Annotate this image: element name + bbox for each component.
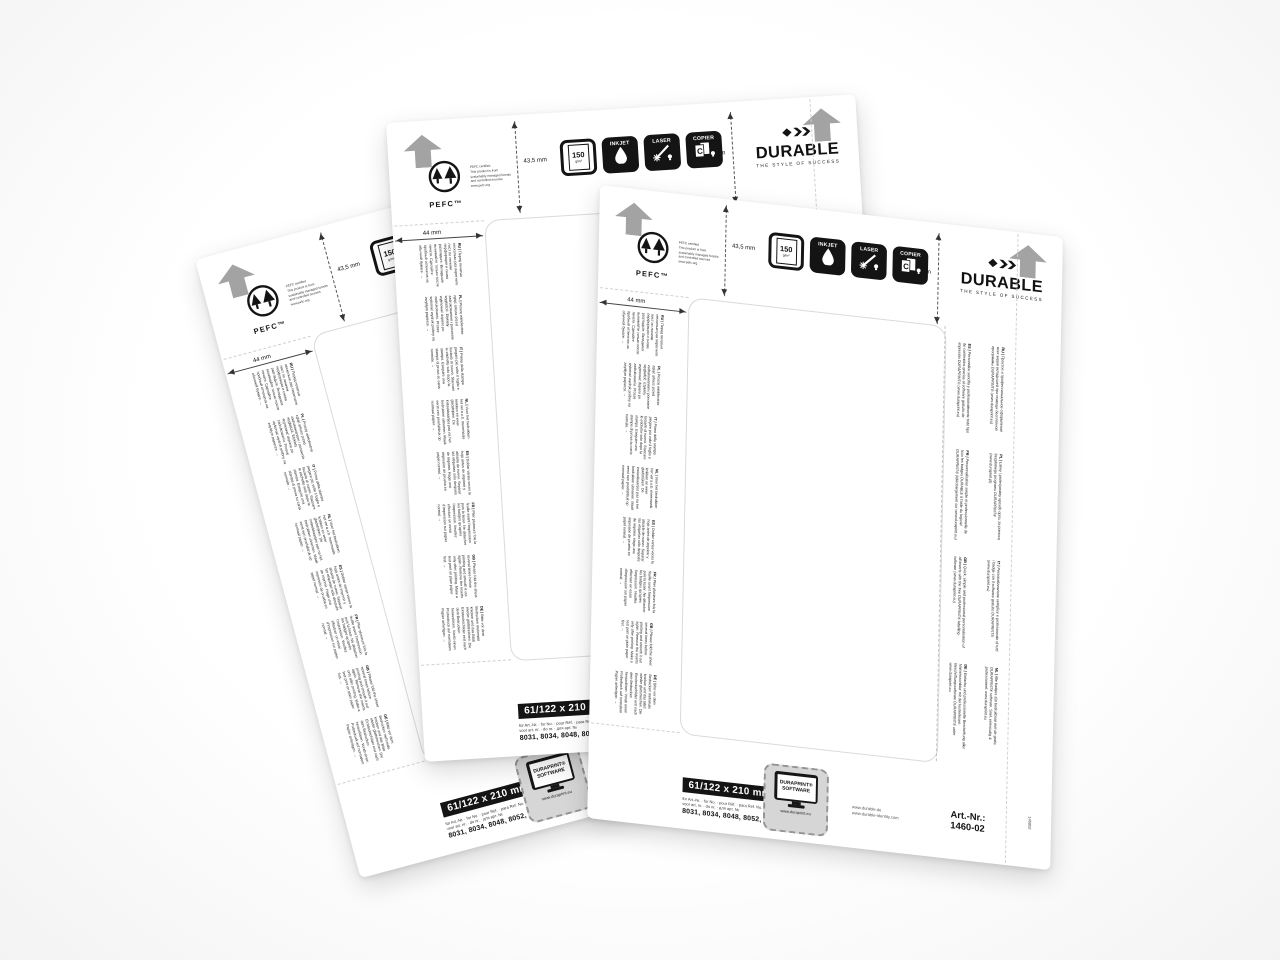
printer-pictograms: 150 g/m² INKJET LASER (768, 232, 928, 286)
instruction-pair: ES | Personalice sencilla y profesionalm… (946, 335, 1013, 445)
language-code: PL | (999, 454, 1003, 461)
instruction-text: Doblar varias veces la hoja antes de imp… (436, 451, 472, 495)
instruction-text: Voor het bedrukken het vel a.u.b. meerma… (431, 399, 471, 445)
paper-weight-unit: g/m² (575, 159, 582, 163)
instruction-paragraph: GB | Please fold the sheet several times… (416, 551, 503, 606)
instruction-paragraph: GB | Quick, simple and professional pers… (942, 549, 976, 655)
instruction-paragraph: PL | Proszę wielokrotnie zgiąć arkusz pr… (599, 358, 683, 417)
instruction-pair: FR | Personnalisation simple et professi… (944, 442, 1011, 552)
language-code: FR | (471, 502, 475, 509)
instruction-paragraph: NL | Voor het bedrukken het vel a.u.b. m… (597, 460, 681, 519)
language-code: ES | (465, 451, 469, 458)
durable-chevrons-icon (986, 257, 1018, 270)
instruction-paragraph: ES | Personalice sencilla y profesionalm… (946, 335, 980, 441)
pefc-caption: PEFC certified This product is from sust… (678, 234, 719, 287)
paper-weight-icon: 150 g/m² (559, 138, 597, 176)
instruction-text: Prima della stampa piegare più volte il … (283, 465, 325, 510)
language-code: IT | (653, 417, 657, 423)
instruction-text: Prima della stampa piegare più volte il … (625, 414, 658, 460)
language-code: DE | (479, 606, 483, 613)
instruction-paragraph: RU | Простое и профессиональное оформлен… (980, 339, 1014, 445)
pefc-trees-icon (423, 158, 465, 196)
insert-sheet-front: PEFC™ PEFC certified This product is fro… (587, 185, 1063, 870)
instruction-paragraph: NL | Voor het bedrukken het vel a.u.b. m… (407, 395, 494, 450)
instruction-text: Voor het bedrukken het vel a.u.b. meerma… (294, 515, 341, 564)
paper-sheet-icon: 150 g/m² (567, 144, 590, 171)
language-code: FR | (653, 572, 657, 579)
instruction-text: Personalice sencilla y profesionalmente … (956, 342, 971, 433)
language-code: PL | (657, 366, 661, 373)
monitor-icon: DURAPRINT® SOFTWARE (774, 771, 818, 805)
ink-droplet-icon (820, 247, 835, 265)
language-code: ES | (967, 343, 971, 351)
monitor-screen: DURAPRINT® SOFTWARE (528, 754, 572, 787)
language-code: DE | (963, 664, 967, 672)
instruction-text: Перед печатью несколько раз перегните ли… (251, 364, 301, 411)
instruction-paragraph: IT | Prima della stampa piegare più volt… (404, 343, 491, 398)
edge-print-code: 146002 (1027, 816, 1032, 830)
inkjet-icon: INKJET (601, 136, 639, 174)
language-code: PL | (458, 295, 462, 302)
dimension-label: 44 mm (421, 230, 444, 237)
instruction-text: Plier plusieurs fois la feuille avant l'… (321, 615, 368, 659)
svg-text:C: C (903, 261, 909, 271)
language-code: IT | (459, 347, 463, 353)
instruction-text: Plier plusieurs fois la feuille avant l'… (437, 503, 477, 546)
language-code: NL | (464, 398, 468, 405)
perforation-dash-line (394, 220, 484, 226)
instruction-text: Doblar varias veces la hoja antes de imp… (310, 566, 353, 612)
copier-pages-icon: C (899, 256, 921, 275)
instruction-paragraph: IT | Prima della stampa piegare più volt… (598, 409, 682, 468)
language-code: IT | (996, 561, 1000, 567)
monitor-screen: DURAPRINT® SOFTWARE (777, 773, 816, 801)
duraprint-url: www.duraprint.eu (765, 806, 826, 818)
instruction-text: Bitte vor dem Bedrucken mehrmals knicken… (614, 670, 656, 715)
instruction-paragraph: GB | Please fold the sheet several times… (594, 615, 678, 674)
pefc-logo: PEFC™ (238, 279, 291, 337)
margin-dimension-arrow: 43,5 mm (730, 112, 737, 204)
instruction-text: Простое и профессиональное оформление вс… (990, 346, 1005, 432)
instruction-paragraph: DE | Einfache und professionelle Beschri… (940, 656, 974, 762)
pefc-logo: PEFC™ (632, 228, 674, 281)
duraprint-software-badge: DURAPRINT® SOFTWARE www.duraprint.eu (763, 763, 829, 838)
printer-pictograms: 150 g/m² INKJET LASER (559, 131, 723, 177)
instruction-paragraph: ES | Doblar varias veces la hoja antes d… (410, 447, 497, 502)
copier-icon: COPIER C (685, 131, 723, 169)
instruction-text: Proszę wielokrotnie zgiąć arkusz przed z… (424, 295, 464, 341)
instruction-text: Bitte vor dem Bedrucken mehrmals knicken… (441, 606, 485, 650)
laser-icon: LASER (643, 133, 681, 171)
folding-instructions-column: RU | Перед печатью несколько раз перегни… (593, 306, 684, 725)
margin-dimension-arrow: 43,5 mm (937, 233, 940, 324)
paper-sheet-icon: 150 g/m² (776, 238, 797, 266)
instruction-text: Quick, simple and professional personali… (952, 556, 966, 648)
instruction-text: Please fold the sheet several times befo… (621, 620, 653, 666)
instruction-text: Bitte vor dem Bedrucken mehrmals knicken… (346, 715, 395, 765)
durable-logo: DURABLE THE STYLE OF SUCCESS (739, 121, 855, 170)
copier-pages-icon: C (693, 141, 716, 159)
instruction-paragraph: DE | Bitte vor dem Bedrucken mehrmals kn… (593, 666, 677, 725)
software-instructions-column: ES | Personalice sencilla y profesionalm… (940, 335, 1014, 766)
pefc-caption-line: www.pefc.org (471, 182, 512, 189)
language-code: FR | (965, 450, 969, 458)
language-code: DE | (653, 675, 657, 683)
instruction-text: Prima della stampa piegare più volte il … (430, 347, 465, 391)
paper-weight-icon: 150 g/m² (768, 232, 804, 272)
pefc-caption: PEFC certified This product is from sust… (469, 156, 512, 207)
language-code: NL | (994, 668, 998, 675)
language-code: NL | (655, 469, 659, 476)
instruction-pair: GB | Quick, simple and professional pers… (942, 549, 1009, 659)
instruction-paragraph: PL | Proszę wielokrotnie zgiąć arkusz pr… (401, 291, 488, 346)
instruction-text: Proszę wielokrotnie zgiąć arkusz przed z… (267, 414, 314, 464)
pefc-trees-icon (633, 228, 673, 268)
laser-icon: LASER (851, 241, 887, 281)
instruction-text: Einfache und professionelle Beschriftung… (948, 662, 967, 749)
instruction-text: Personnalisation simple et professionnel… (954, 449, 969, 540)
language-code: RU | (1001, 347, 1005, 355)
instruction-text: Proszę wielokrotnie zgiąć arkusz przed z… (623, 362, 661, 409)
inkjet-icon: INKJET (810, 236, 846, 276)
language-code: RU | (457, 243, 461, 251)
instruction-paragraph: DE | Bitte vor dem Bedrucken mehrmals kn… (420, 603, 507, 658)
instruction-text: Łatwy i profesjonalny sposób opisu za po… (988, 453, 1002, 540)
laser-beam-icon (651, 143, 673, 161)
svg-text:C: C (697, 146, 704, 155)
ink-droplet-icon (612, 146, 628, 164)
paper-weight-unit: g/m² (783, 253, 790, 258)
instruction-text: Doblar varias veces la hoja antes de imp… (622, 517, 655, 564)
website-links: www.durable.de www.durable-identity.com (852, 804, 899, 822)
dimension-label: 44 mm (251, 353, 274, 365)
perforation-dash-line (421, 659, 511, 665)
instruction-text: Personalizzazione semplice e professiona… (986, 560, 1000, 652)
pefc-wordmark: PEFC™ (632, 268, 674, 282)
language-code: GB | (963, 557, 967, 565)
language-code: GB | (649, 623, 653, 631)
article-number-block: Art.-Nr.: 1460-02 (950, 809, 985, 835)
copier-icon: COPIER C (892, 246, 928, 286)
instruction-paragraph: FR | Plier plusieurs fois la feuille ava… (595, 563, 679, 622)
language-code: RU | (660, 315, 664, 323)
product-photo: PEFC™ PEFC certified This product is fro… (0, 0, 1280, 960)
instruction-text: Voor het bedrukken het vel a.u.b. meerma… (621, 465, 659, 511)
durable-chevrons-icon (780, 126, 813, 138)
language-code: ES | (651, 520, 655, 527)
instruction-paragraph: RU | Перед печатью несколько раз перегни… (397, 239, 484, 294)
instruction-paragraph: IT | Personalizzazione semplice e profes… (976, 553, 1010, 659)
instruction-pair: DE | Einfache und professionelle Beschri… (940, 656, 1007, 766)
instruction-paragraph: FR | Plier plusieurs fois la feuille ava… (413, 499, 500, 554)
pefc-certification: PEFC™ PEFC certified This product is fro… (632, 228, 767, 292)
pefc-caption: PEFC certified This product is from sust… (284, 267, 336, 325)
instruction-paragraph: NL | Alle badges zijn bedrukbaar met de … (973, 659, 1007, 765)
pefc-wordmark: PEFC™ (425, 198, 467, 210)
perforation-dash-line (600, 287, 689, 298)
instruction-paragraph: PL | Łatwy i profesjonalny sposób opisu … (978, 446, 1012, 552)
instruction-paragraph: ES | Doblar varias veces la hoja antes d… (596, 512, 680, 571)
instruction-paragraph: FR | Personnalisation simple et professi… (944, 442, 978, 548)
dimension-label: 44 mm (625, 297, 647, 305)
laser-beam-icon (858, 252, 879, 271)
pefc-logo: PEFC™ (422, 158, 467, 209)
instruction-text: Please fold the sheet several times befo… (337, 666, 380, 712)
die-cut-insert-outline (680, 297, 947, 763)
instruction-paragraph: RU | Перед печатью несколько раз перегни… (601, 306, 685, 365)
monitor-base (787, 804, 804, 808)
instruction-text: Перед печатью несколько раз перегните ли… (622, 310, 664, 356)
language-code: GB | (471, 554, 475, 562)
instruction-text: Plier plusieurs fois la feuille avant l'… (619, 568, 656, 614)
instruction-text: Alle badges zijn bedrukbaar met de grati… (984, 666, 999, 745)
instruction-text: Перед печатью несколько раз перегните ли… (419, 243, 464, 287)
